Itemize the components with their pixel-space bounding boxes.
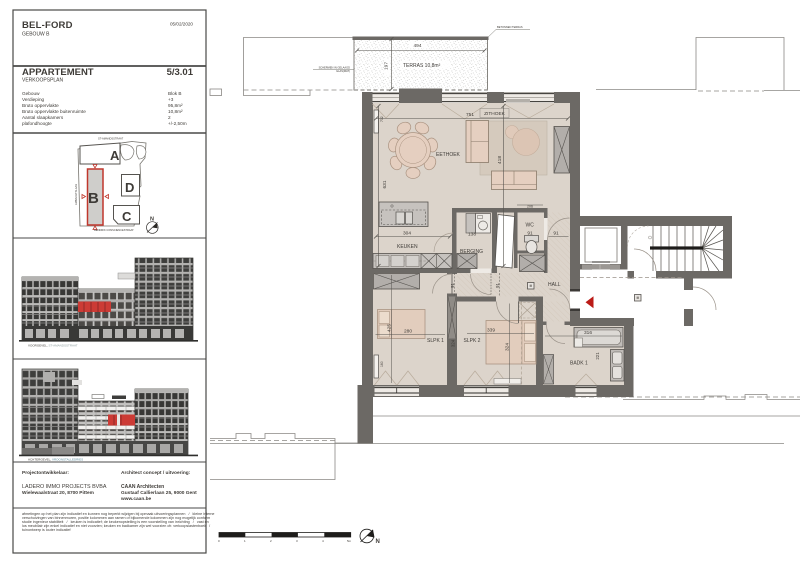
svg-text:91: 91 (527, 231, 533, 237)
svg-text:Bruto oppervlakte buitenruimte: Bruto oppervlakte buitenruimte (22, 109, 86, 114)
svg-text:ZITHOEK: ZITHOEK (484, 111, 506, 117)
svg-text:160: 160 (380, 361, 384, 367)
svg-text:91: 91 (553, 231, 559, 237)
svg-text:LADERO IMMO PROJECTS BVBA: LADERO IMMO PROJECTS BVBA (22, 484, 107, 490)
svg-text:2: 2 (168, 115, 171, 120)
svg-text:WC: WC (526, 223, 535, 229)
svg-text:5/3.01: 5/3.01 (167, 67, 194, 78)
svg-text:Wielewaalstraat 20, 8700 Pitte: Wielewaalstraat 20, 8700 Pittem (22, 490, 94, 496)
svg-text:EETHOEK: EETHOEK (436, 152, 461, 158)
svg-text:KEUKEN: KEUKEN (397, 244, 418, 250)
svg-text:Aantal slaapkamers: Aantal slaapkamers (22, 115, 64, 120)
svg-text:GEBOUW B: GEBOUW B (22, 32, 50, 38)
svg-text:VOORGEVEL, ST-AMANDSSTRAAT: VOORGEVEL, ST-AMANDSSTRAAT (28, 344, 78, 348)
svg-text:304: 304 (403, 231, 411, 237)
svg-text:425: 425 (387, 324, 393, 332)
svg-text:+3: +3 (168, 97, 174, 102)
svg-text:SLPK 2: SLPK 2 (464, 338, 481, 344)
svg-text:Blok B: Blok B (168, 91, 182, 96)
svg-text:+/-2,50m: +/-2,50m (168, 121, 187, 126)
svg-text:www.caan.be: www.caan.be (120, 496, 152, 502)
svg-text:TERRAS 10,8m²: TERRAS 10,8m² (403, 63, 441, 69)
svg-text:AMBACHTSLAAN: AMBACHTSLAAN (74, 184, 78, 205)
svg-text:631: 631 (382, 180, 388, 188)
svg-text:138: 138 (468, 232, 476, 238)
svg-text:324: 324 (505, 343, 511, 351)
svg-text:Verdieping: Verdieping (22, 97, 45, 102)
svg-text:VERKOOPSPLAN: VERKOOPSPLAN (22, 78, 64, 84)
svg-text:5m: 5m (347, 539, 352, 543)
svg-text:N: N (150, 217, 154, 223)
svg-text:221: 221 (595, 352, 600, 360)
svg-text:A: A (110, 148, 120, 163)
svg-text:APPARTEMENT: APPARTEMENT (22, 67, 94, 78)
svg-text:732: 732 (380, 116, 384, 122)
svg-text:SCHERMEN IN GELAAGD: SCHERMEN IN GELAAGD (319, 66, 351, 70)
svg-text:HENDRIK CONSCIENCESTRAAT: HENDRIK CONSCIENCESTRAAT (94, 228, 134, 232)
svg-text:751: 751 (466, 112, 474, 118)
svg-text:10,8m²: 10,8m² (168, 109, 183, 114)
svg-text:494: 494 (413, 43, 421, 49)
svg-text:324: 324 (451, 339, 456, 347)
svg-text:91: 91 (450, 283, 455, 288)
svg-text:BETONNEN TERRAS: BETONNEN TERRAS (497, 25, 523, 29)
svg-text:418: 418 (497, 156, 503, 164)
svg-text:ST-AMANDSSTRAAT: ST-AMANDSSTRAAT (98, 137, 124, 141)
svg-text:316: 316 (584, 330, 592, 336)
svg-text:B: B (88, 190, 99, 207)
svg-text:Gustaaf Callierlaan 25, 9000 G: Gustaaf Callierlaan 25, 9000 Gent (121, 490, 197, 496)
svg-text:05/02/2020: 05/02/2020 (170, 22, 193, 27)
svg-text:Projectontwikkelaar:: Projectontwikkelaar: (22, 470, 69, 476)
svg-text:95,8m²: 95,8m² (168, 103, 183, 108)
svg-text:BEL-FORD: BEL-FORD (22, 20, 73, 31)
svg-text:339: 339 (487, 328, 495, 334)
svg-text:Gebouw: Gebouw (22, 91, 40, 96)
svg-text:Bruto oppervlakte: Bruto oppervlakte (22, 103, 59, 108)
svg-text:D: D (125, 180, 134, 195)
svg-text:280: 280 (404, 329, 412, 335)
svg-text:BADK 1: BADK 1 (570, 361, 588, 367)
svg-text:tuinontwerp is louter indicati: tuinontwerp is louter indicatief (22, 528, 72, 532)
svg-text:SLPK 1: SLPK 1 (427, 338, 444, 344)
svg-text:C: C (122, 209, 132, 224)
svg-text:HALL: HALL (548, 282, 561, 288)
svg-text:BERGING: BERGING (460, 249, 483, 255)
svg-text:197: 197 (384, 62, 390, 70)
svg-text:CAAN Architecten: CAAN Architecten (121, 484, 164, 490)
svg-text:N: N (376, 539, 380, 545)
svg-text:ACHTERGEVEL, VROONSTALLEDRIES: ACHTERGEVEL, VROONSTALLEDRIES (28, 458, 83, 462)
svg-text:plafondhoogte: plafondhoogte (22, 121, 52, 126)
svg-text:91: 91 (495, 283, 500, 288)
svg-text:Architect concept / uitvoering: Architect concept / uitvoering: (121, 470, 191, 476)
